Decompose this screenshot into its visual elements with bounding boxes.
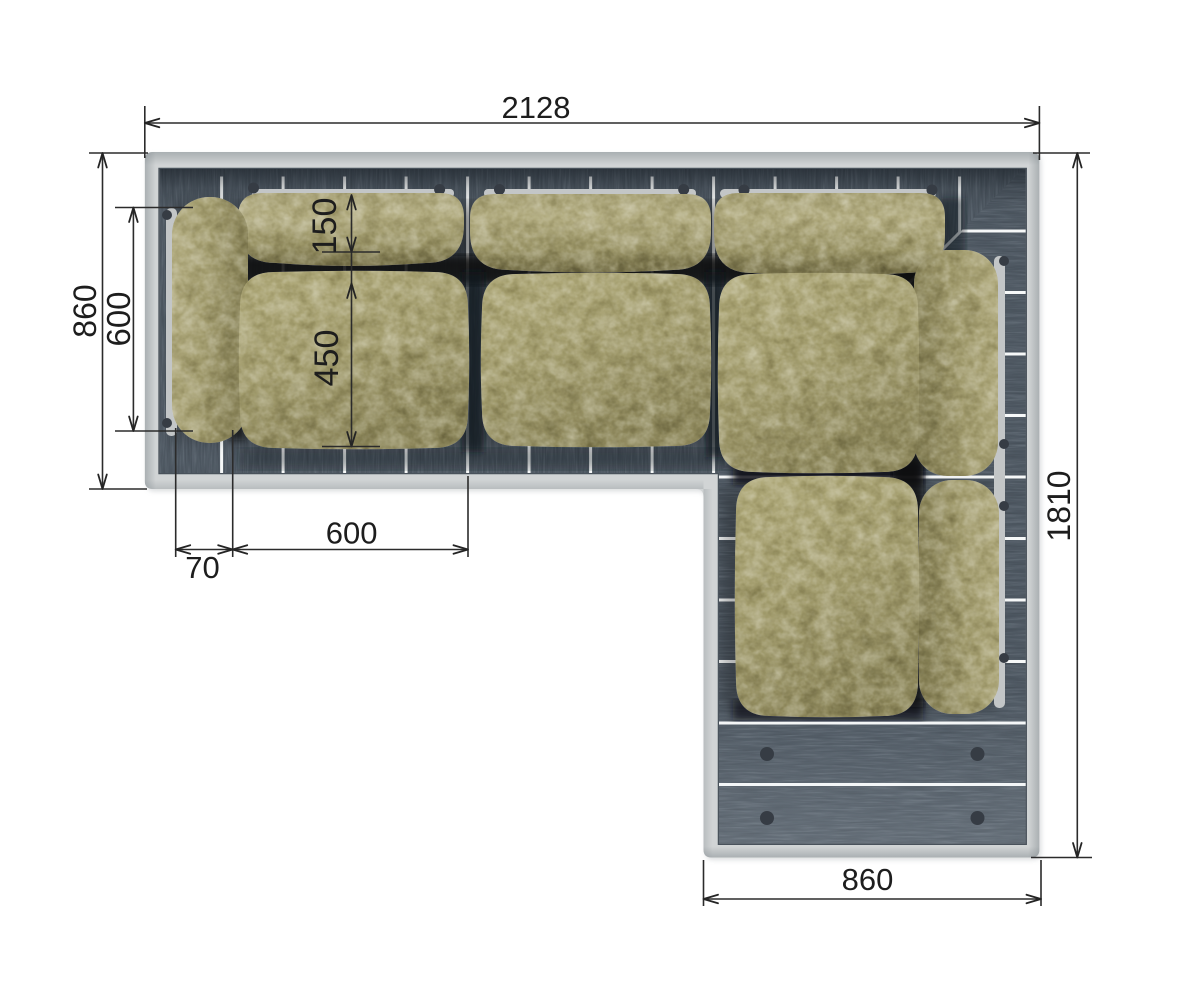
svg-text:860: 860 (842, 862, 894, 897)
svg-text:860: 860 (67, 284, 103, 337)
svg-text:600: 600 (100, 291, 137, 346)
svg-text:1810: 1810 (1041, 470, 1077, 541)
svg-text:2128: 2128 (502, 90, 571, 125)
svg-text:450: 450 (308, 330, 346, 387)
svg-text:70: 70 (185, 550, 219, 585)
svg-text:150: 150 (306, 198, 344, 255)
svg-text:600: 600 (326, 516, 378, 551)
